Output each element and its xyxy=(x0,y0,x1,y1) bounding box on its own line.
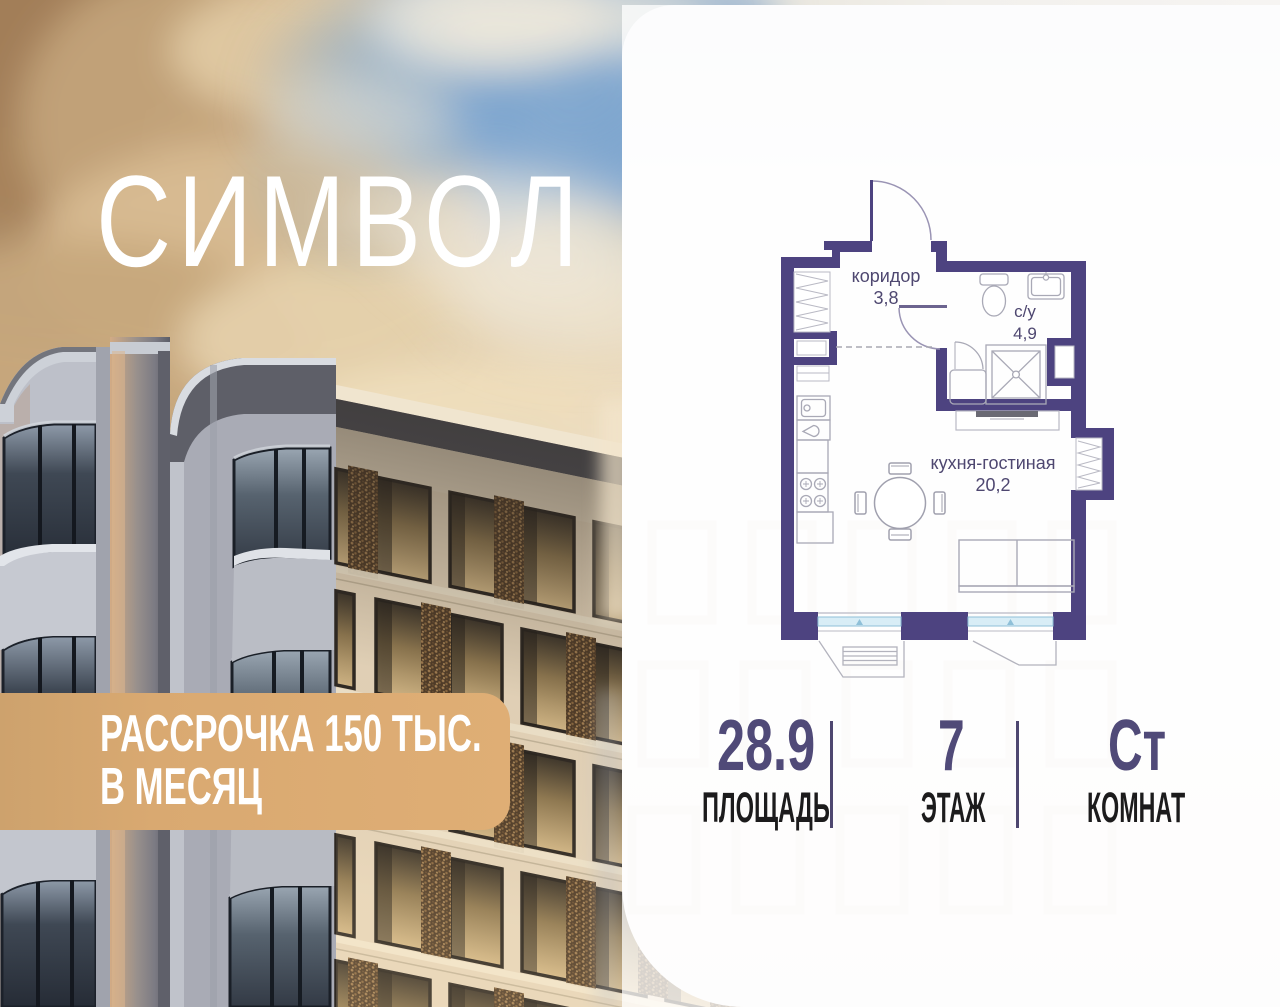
svg-text:4,9: 4,9 xyxy=(1013,324,1037,343)
svg-text:3,8: 3,8 xyxy=(873,288,898,308)
svg-text:20,2: 20,2 xyxy=(975,475,1010,495)
svg-text:кухня-гостиная: кухня-гостиная xyxy=(931,453,1056,473)
svg-text:с/у: с/у xyxy=(1014,302,1036,321)
svg-text:коридор: коридор xyxy=(852,266,921,286)
